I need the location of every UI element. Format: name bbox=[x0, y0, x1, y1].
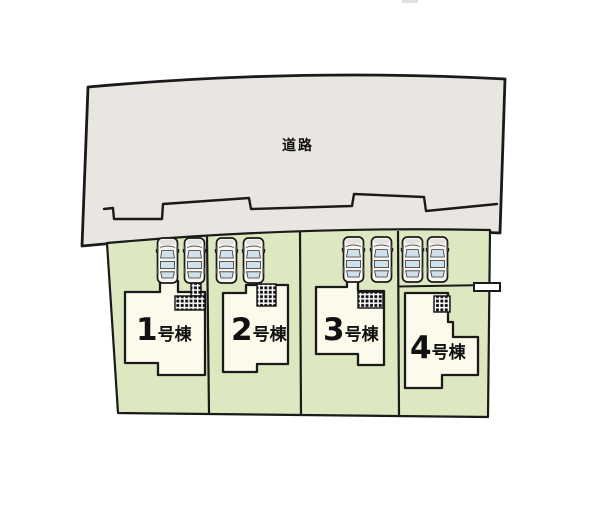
car-icon bbox=[156, 238, 179, 283]
house-3-hatch bbox=[358, 292, 383, 308]
car-icon bbox=[215, 238, 238, 283]
site-plan-image: 道路 1号棟 2号棟 3号棟 4号棟 bbox=[0, 0, 600, 507]
car-icon bbox=[342, 237, 365, 282]
house-4-hatch bbox=[434, 296, 450, 312]
lot-divider-2-3 bbox=[300, 232, 301, 415]
house-2-hatch bbox=[257, 284, 276, 306]
house-1-hatch-small bbox=[191, 282, 201, 296]
culvert-box bbox=[474, 283, 500, 291]
road-area bbox=[82, 75, 505, 246]
site-plan-svg: 道路 1号棟 2号棟 3号棟 4号棟 bbox=[0, 0, 600, 507]
car-icon bbox=[370, 237, 393, 282]
road-label: 道路 bbox=[282, 137, 314, 154]
car-icon bbox=[401, 237, 424, 282]
house-1-hatch bbox=[175, 296, 205, 310]
car-icon bbox=[426, 237, 449, 282]
car-icon bbox=[183, 238, 206, 283]
lot-divider-3-4 bbox=[398, 231, 399, 415]
car-icon bbox=[242, 238, 265, 283]
scan-artifact bbox=[402, 0, 418, 3]
